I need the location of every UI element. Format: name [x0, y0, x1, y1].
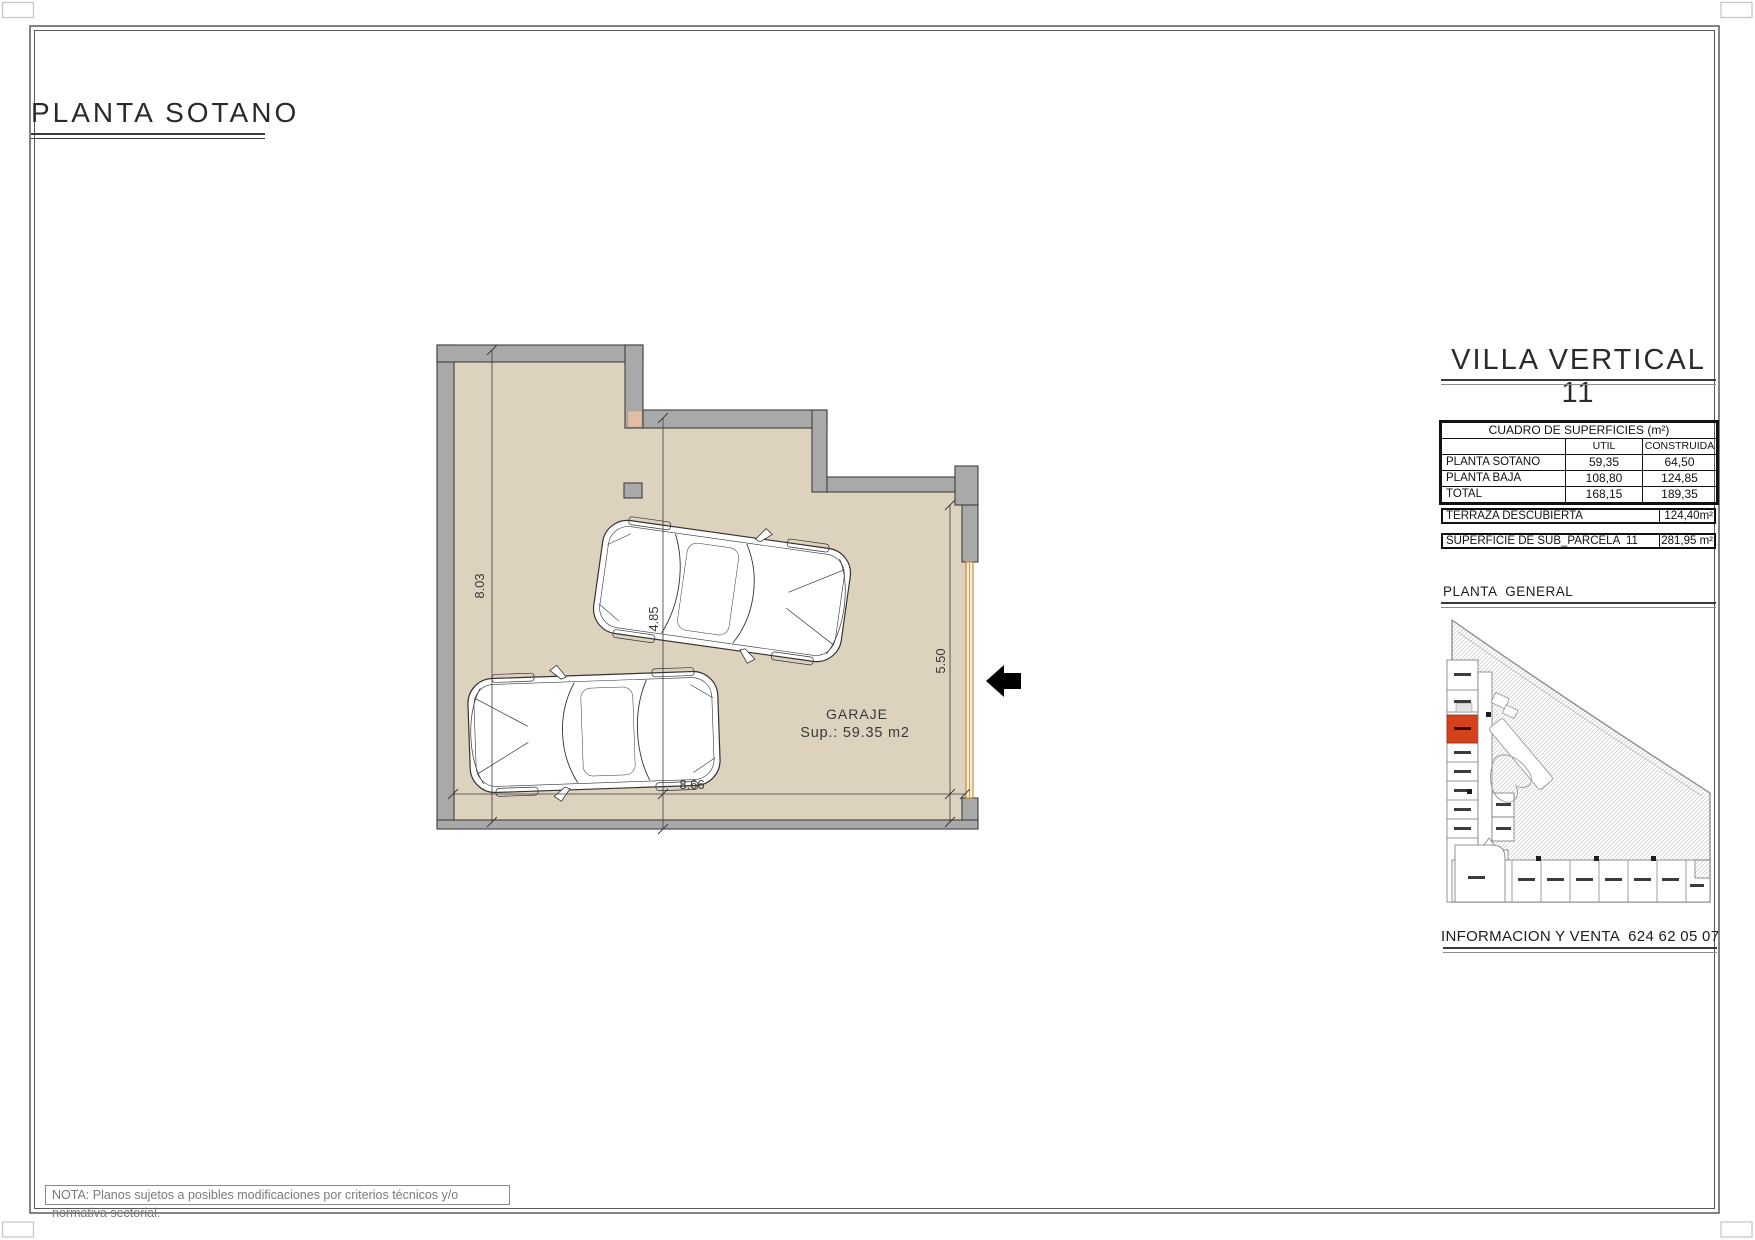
row-construida: 64,50	[1643, 455, 1717, 471]
row-label: TOTAL	[1442, 487, 1566, 503]
garage-door	[966, 562, 973, 798]
dim-mid-label: 4.85	[646, 606, 661, 631]
drawing-canvas: 8.03 4.85 5.50 8.66 GARAJE Sup.: 59.35 m…	[0, 0, 1755, 1240]
pillar	[624, 483, 642, 498]
dim-bottom-label: 8.66	[679, 777, 704, 792]
surfaces-table-title: CUADRO DE SUPERFICIES (m²)	[1442, 423, 1717, 439]
planta-general-title: PLANTA GENERAL	[1443, 584, 1573, 599]
sheet: 8.03 4.85 5.50 8.66 GARAJE Sup.: 59.35 m…	[0, 0, 1755, 1240]
row-util: 108,80	[1566, 471, 1643, 487]
row-construida: 124,85	[1643, 471, 1717, 487]
table-row: TOTAL 168,15 189,35	[1442, 487, 1717, 503]
wall-accent	[628, 411, 642, 427]
surfaces-col-construida: CONSTRUIDA	[1643, 439, 1717, 455]
page-title: PLANTA SOTANO	[31, 98, 299, 128]
row-util: 168,15	[1566, 487, 1643, 503]
note-box: NOTA: Planos sujetos a posibles modifica…	[45, 1185, 510, 1205]
parcela-bar: SUPERFICIE DE SUB_PARCELA 11 281,95 m²	[1441, 533, 1716, 549]
site-plan	[1447, 620, 1710, 902]
surfaces-col-empty	[1442, 439, 1566, 455]
panel-title: VILLA VERTICAL 11	[1441, 344, 1716, 410]
row-label: PLANTA BAJA	[1442, 471, 1566, 487]
contact-info: INFORMACION Y VENTA 624 62 05 07	[1441, 928, 1718, 945]
row-util: 59,35	[1566, 455, 1643, 471]
parcela-value: 281,95 m²	[1660, 535, 1714, 547]
room-area-label: Sup.: 59.35 m2	[800, 725, 910, 741]
dim-left-label: 8.03	[472, 573, 487, 598]
terraza-label: TERRAZA DESCUBIERTA	[1443, 510, 1660, 522]
row-label: PLANTA SOTANO	[1442, 455, 1566, 471]
parcela-label: SUPERFICIE DE SUB_PARCELA 11	[1443, 535, 1660, 547]
floor-plan: 8.03 4.85 5.50 8.66 GARAJE Sup.: 59.35 m…	[437, 345, 1021, 834]
table-row: PLANTA BAJA 108,80 124,85	[1442, 471, 1717, 487]
dim-right-label: 5.50	[933, 648, 948, 673]
terraza-value: 124,40m²	[1660, 510, 1714, 522]
contact-underline	[1443, 947, 1717, 953]
table-row: PLANTA SOTANO 59,35 64,50	[1442, 455, 1717, 471]
surfaces-col-util: UTIL	[1566, 439, 1643, 455]
surfaces-table: CUADRO DE SUPERFICIES (m²) UTIL CONSTRUI…	[1441, 422, 1717, 503]
row-construida: 189,35	[1643, 487, 1717, 503]
room-label: GARAJE	[826, 706, 888, 722]
page-title-underline	[31, 133, 265, 139]
terraza-bar: TERRAZA DESCUBIERTA 124,40m²	[1441, 508, 1716, 524]
planta-general-underline	[1441, 602, 1716, 608]
entry-arrow-icon	[986, 665, 1021, 697]
panel-title-underline	[1441, 379, 1716, 385]
